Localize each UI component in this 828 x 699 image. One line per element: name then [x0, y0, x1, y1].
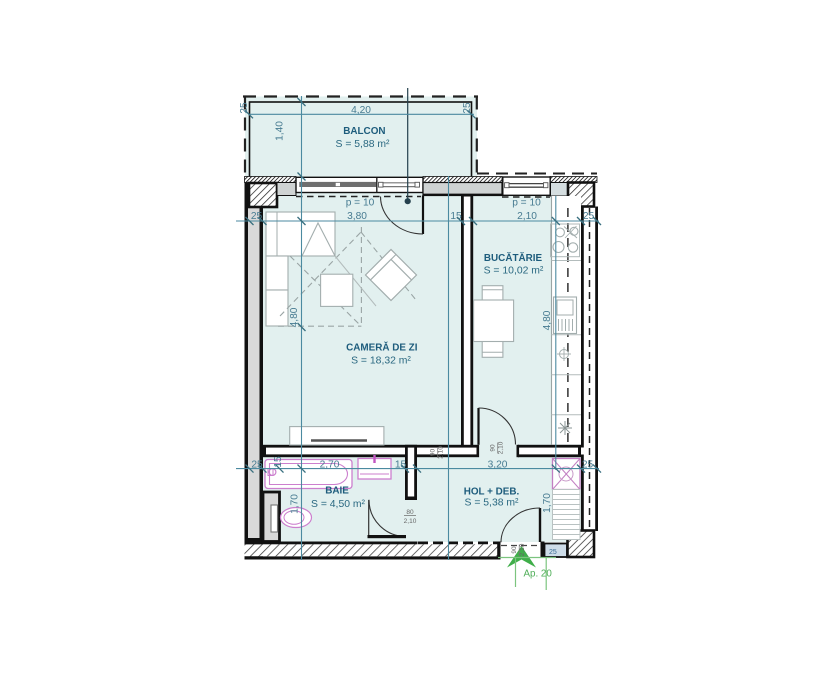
svg-text:25: 25 [549, 549, 557, 556]
svg-text:25: 25 [251, 211, 263, 222]
svg-text:S = 10,02 m²: S = 10,02 m² [484, 266, 544, 277]
svg-text:1,40: 1,40 [275, 121, 286, 141]
svg-text:25: 25 [583, 211, 595, 222]
svg-text:90: 90 [490, 444, 497, 452]
svg-text:4,80: 4,80 [542, 310, 553, 330]
svg-text:2,10: 2,10 [519, 543, 526, 556]
svg-text:BUCĂTĂRIE: BUCĂTĂRIE [484, 253, 543, 264]
svg-text:2,10: 2,10 [438, 446, 445, 459]
svg-text:S = 18,32 m²: S = 18,32 m² [351, 356, 411, 367]
svg-text:3,20: 3,20 [488, 460, 508, 471]
svg-text:1,70: 1,70 [542, 493, 553, 513]
svg-text:2,70: 2,70 [320, 460, 340, 471]
svg-text:2,10: 2,10 [498, 441, 505, 454]
svg-text:BALCON: BALCON [343, 126, 385, 137]
svg-text:25: 25 [251, 460, 263, 471]
svg-text:p = 10: p = 10 [346, 198, 375, 209]
svg-text:BAIE: BAIE [325, 486, 349, 497]
svg-text:15: 15 [273, 456, 284, 468]
svg-text:CAMERĂ DE ZI: CAMERĂ DE ZI [346, 343, 418, 354]
svg-text:1,70: 1,70 [290, 494, 301, 514]
svg-text:25: 25 [582, 460, 594, 471]
svg-text:S = 5,88 m²: S = 5,88 m² [336, 139, 391, 150]
svg-text:90: 90 [430, 449, 437, 457]
svg-text:4,20: 4,20 [351, 105, 371, 116]
svg-text:2,10: 2,10 [517, 211, 537, 222]
svg-text:80: 80 [406, 509, 414, 516]
svg-text:p = 10: p = 10 [512, 198, 541, 209]
svg-text:Ap. 20: Ap. 20 [524, 569, 553, 580]
svg-text:S = 5,38 m²: S = 5,38 m² [465, 498, 520, 509]
svg-text:3,80: 3,80 [347, 211, 367, 222]
svg-text:25: 25 [239, 102, 250, 114]
svg-text:90: 90 [511, 546, 518, 554]
svg-text:S = 4,50 m²: S = 4,50 m² [311, 499, 366, 510]
svg-text:25: 25 [462, 102, 473, 114]
svg-text:2,10: 2,10 [404, 518, 417, 525]
svg-text:HOL + DEB.: HOL + DEB. [464, 486, 520, 497]
